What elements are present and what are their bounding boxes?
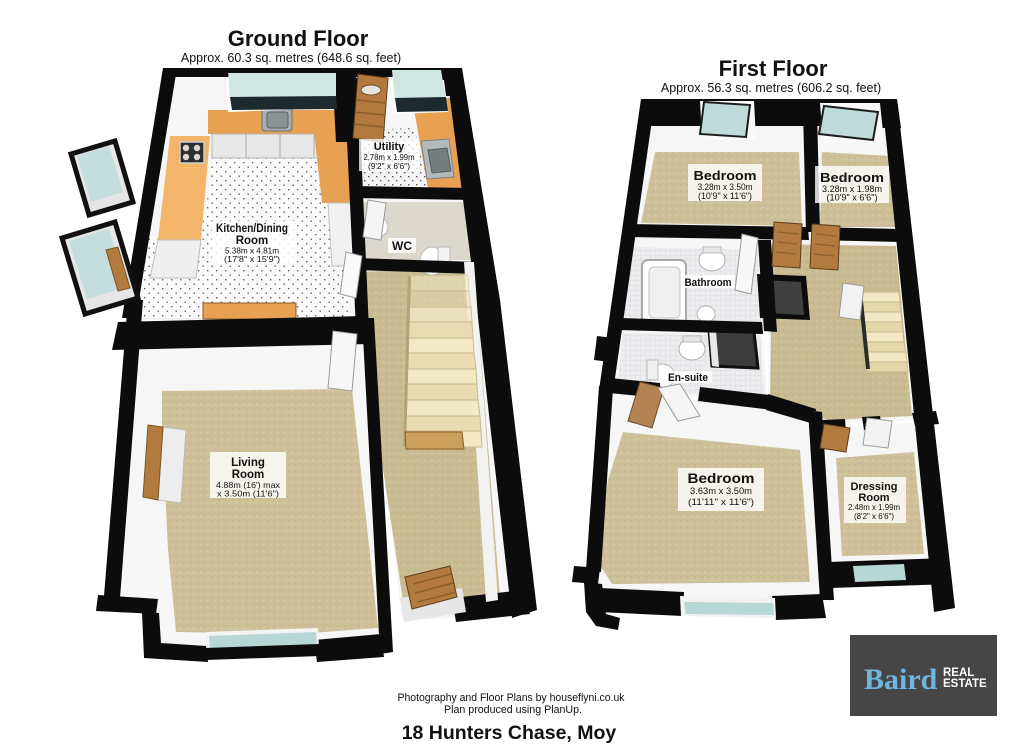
svg-text:Baird: Baird: [864, 663, 938, 696]
svg-text:Approx. 60.3 sq. metres (648.6: Approx. 60.3 sq. metres (648.6 sq. feet): [181, 51, 401, 65]
svg-text:Bathroom: Bathroom: [685, 277, 732, 289]
svg-text:Photography and Floor Plans by: Photography and Floor Plans by houseflyn…: [398, 692, 625, 704]
svg-text:Plan produced using PlanUp.: Plan produced using PlanUp.: [444, 704, 582, 716]
svg-text:WC: WC: [392, 239, 412, 253]
svg-text:Bedroom: Bedroom: [694, 168, 757, 183]
svg-text:Ground Floor: Ground Floor: [228, 26, 369, 51]
svg-text:Bedroom: Bedroom: [820, 170, 884, 185]
svg-text:(17'8" x 15'9"): (17'8" x 15'9"): [224, 254, 280, 264]
svg-text:3.63m x 3.50m: 3.63m x 3.50m: [690, 486, 752, 497]
svg-text:Approx. 56.3 sq. metres (606.2: Approx. 56.3 sq. metres (606.2 sq. feet): [661, 81, 881, 95]
svg-text:(10'9" x 11'6"): (10'9" x 11'6"): [698, 191, 752, 201]
svg-text:(11'11" x 11'6"): (11'11" x 11'6"): [688, 497, 754, 508]
svg-text:Kitchen/Dining: Kitchen/Dining: [216, 223, 288, 235]
svg-text:(8'2" x 6'6"): (8'2" x 6'6"): [854, 511, 894, 521]
svg-text:x 3.50m (11'6"): x 3.50m (11'6"): [217, 489, 279, 499]
svg-text:18 Hunters Chase, Moy: 18 Hunters Chase, Moy: [402, 722, 617, 744]
svg-text:Living: Living: [231, 457, 265, 469]
svg-text:(10'9" x 6'6"): (10'9" x 6'6"): [827, 193, 878, 203]
svg-text:Bedroom: Bedroom: [688, 471, 755, 486]
svg-text:ESTATE: ESTATE: [943, 678, 987, 690]
svg-text:(9'2" x 6'6"): (9'2" x 6'6"): [368, 161, 410, 171]
svg-text:En-suite: En-suite: [668, 372, 708, 384]
svg-text:First Floor: First Floor: [719, 56, 828, 81]
